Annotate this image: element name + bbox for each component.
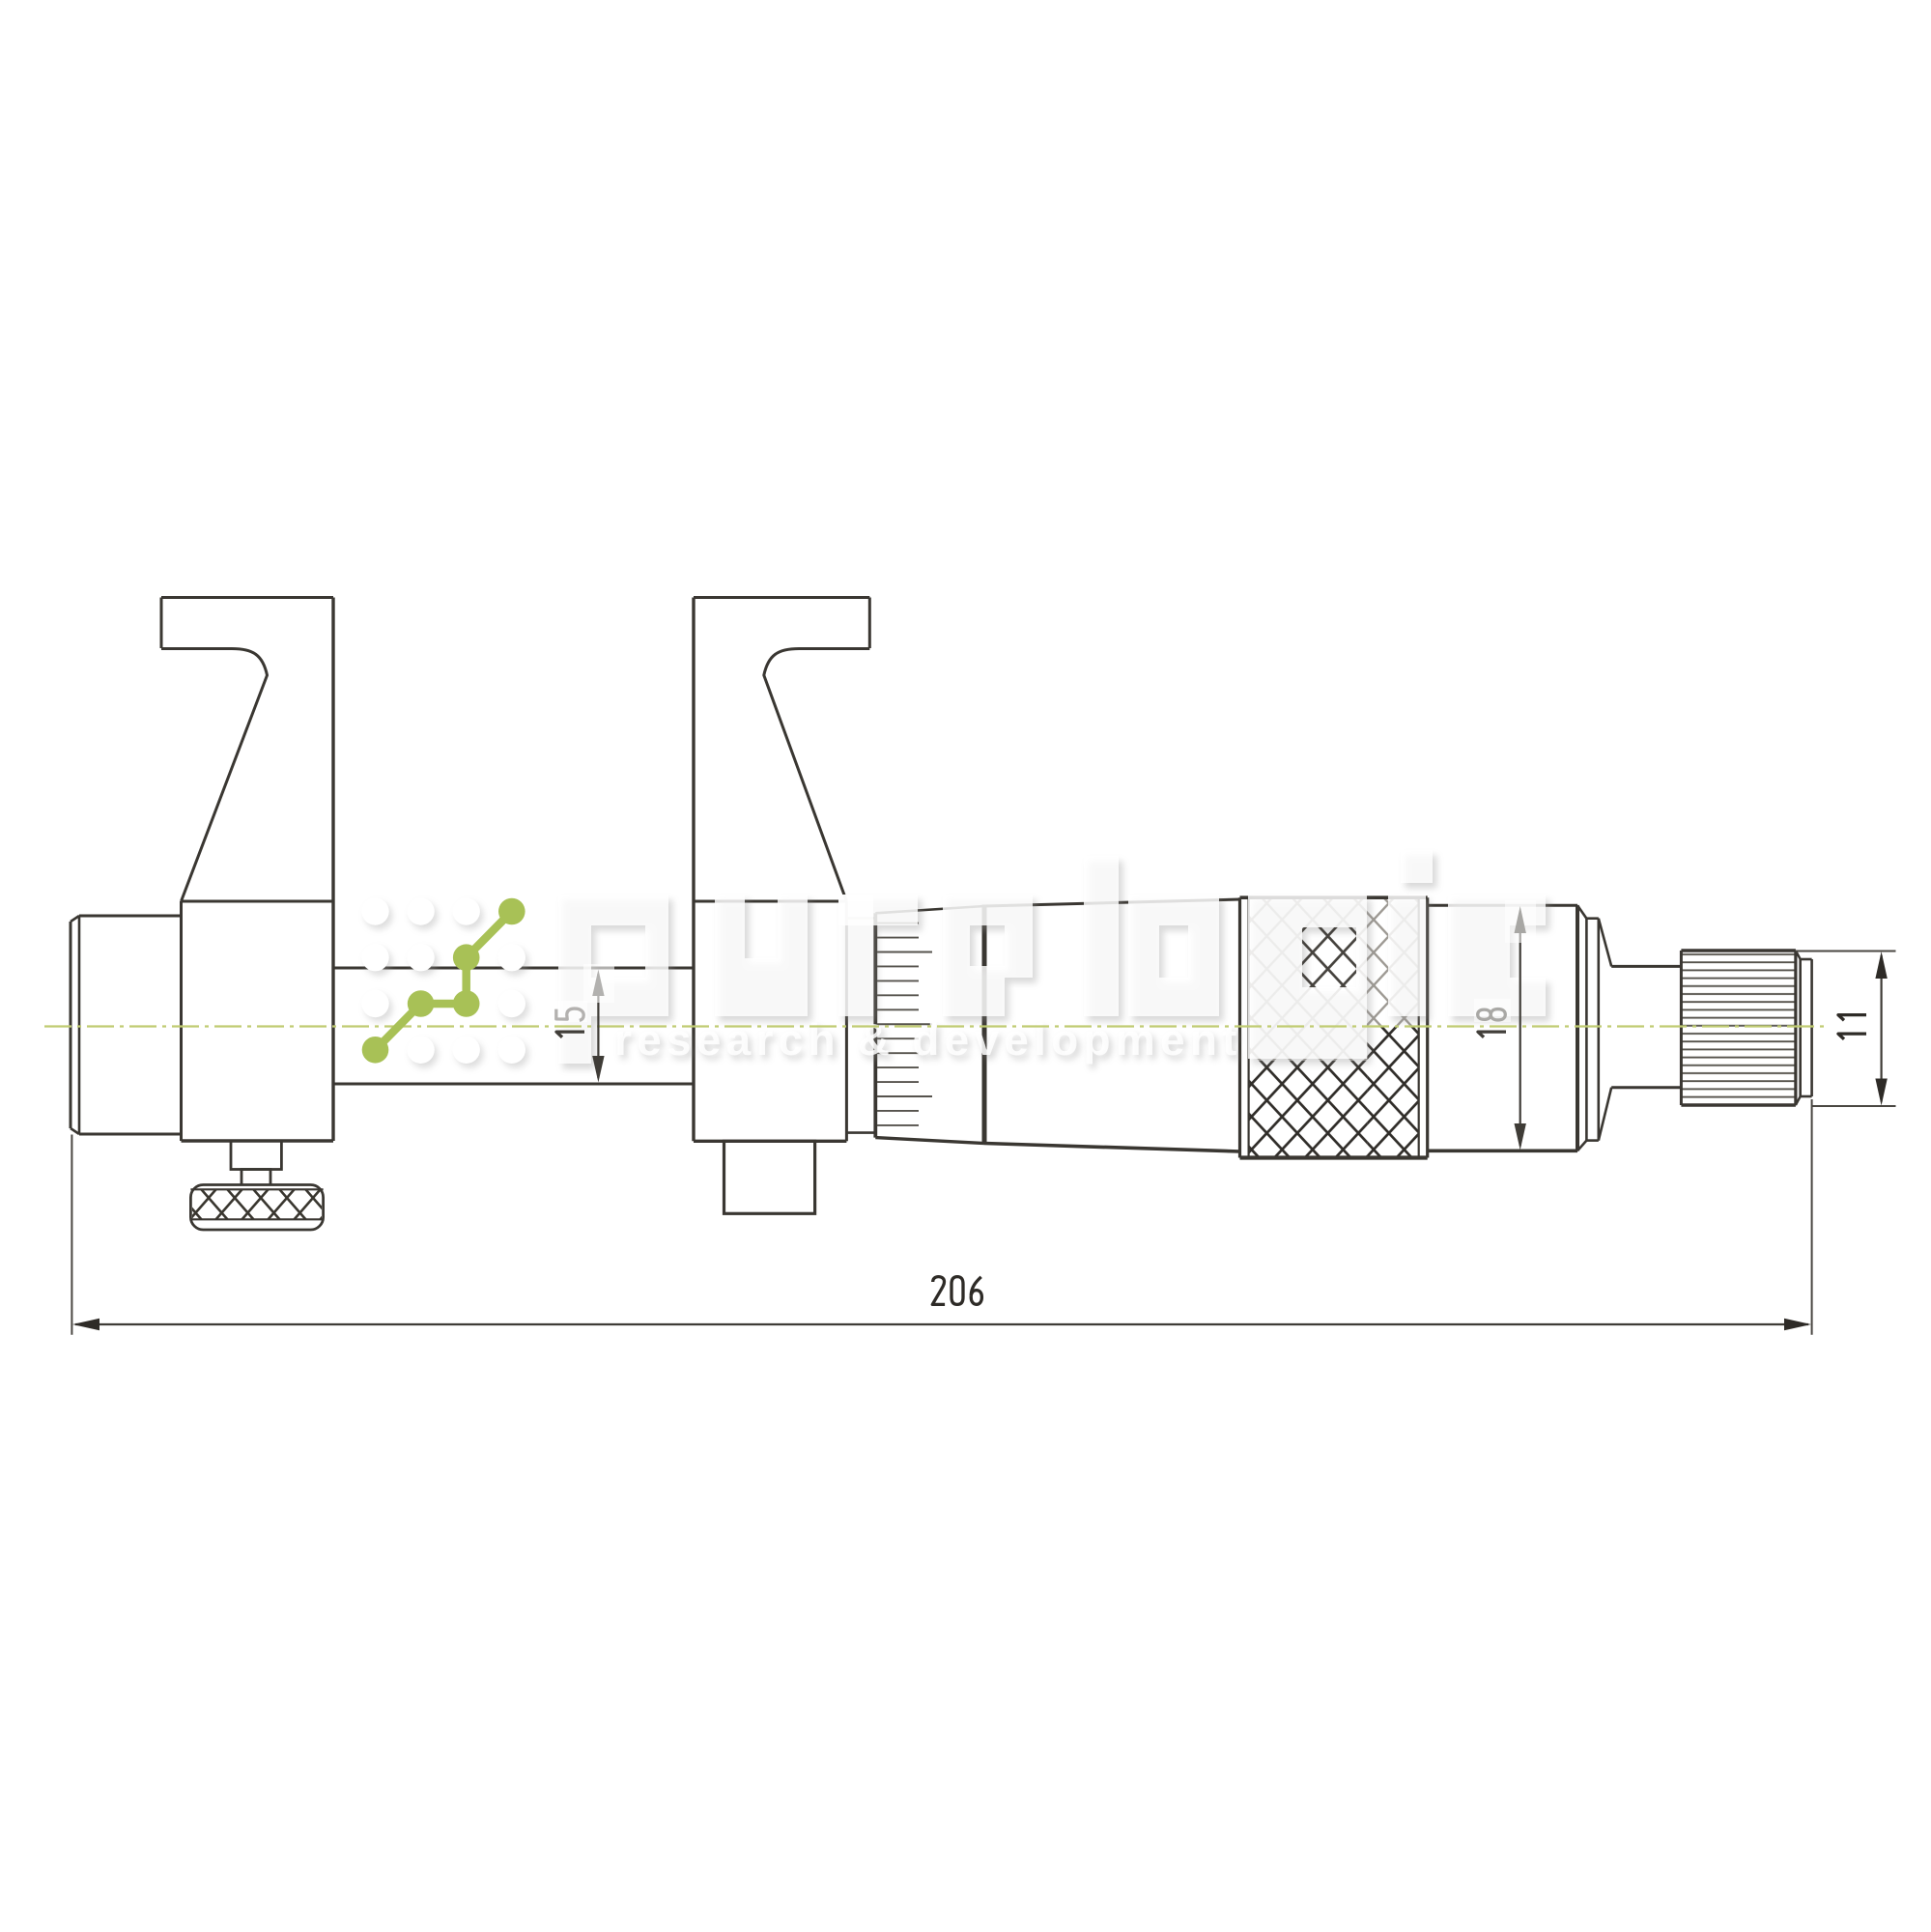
svg-text:research & development: research & development (614, 1014, 1240, 1065)
